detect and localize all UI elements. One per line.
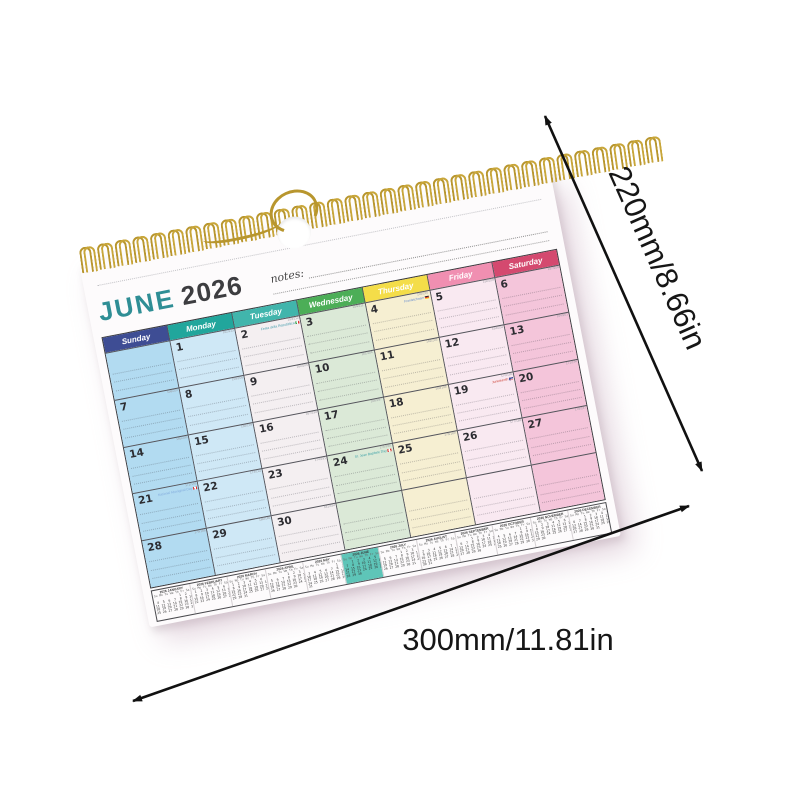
spiral-coil-icon xyxy=(503,164,519,191)
calendar-sheet: JUNE2026 notes: SundayMondayTuesdayWedne… xyxy=(79,173,621,628)
mini-month-inner: 2026 DECEMBERSu Mo Tu We Th Fr Sa 1 2 3 … xyxy=(570,504,610,534)
mini-month-december: 2026 DECEMBERSu Mo Tu We Th Fr Sa 1 2 3 … xyxy=(567,503,611,540)
mini-month-inner: 2026 JULYSu Mo Tu We Th Fr Sa 1 2 3 4 5 … xyxy=(380,541,420,571)
spiral-coil-icon xyxy=(167,229,183,256)
italy-flag-icon xyxy=(295,321,299,324)
mini-month-inner: 2026 AUGUSTSu Mo Tu We Th Fr Sa 1 2 3 4 … xyxy=(418,534,459,567)
spiral-coil-icon xyxy=(149,232,165,259)
canada-flag-icon xyxy=(388,449,392,452)
mini-month-november: 2026 NOVEMBERSu Mo Tu We Th Fr Sa 1 2 3 … xyxy=(530,511,574,548)
title-year: 2026 xyxy=(179,270,245,311)
spiral-coil-icon xyxy=(609,143,625,170)
title-month: JUNE xyxy=(96,283,178,327)
spiral-coil-icon xyxy=(520,160,536,187)
spiral-coil-icon xyxy=(644,136,660,163)
spiral-coil-icon xyxy=(96,243,112,270)
spiral-coil-icon xyxy=(573,150,589,177)
mini-month-inner: 2026 MAYSu Mo Tu We Th Fr Sa 1 2 3 4 5 6… xyxy=(305,556,346,589)
spiral-coil-icon xyxy=(556,153,572,180)
germany-flag-icon xyxy=(425,295,429,298)
spiral-coil-icon xyxy=(344,194,360,221)
mini-month-inner: 2026 JUNESu Mo Tu We Th Fr Sa 1 2 3 4 5 … xyxy=(342,548,382,578)
mini-month-inner: 2026 JANUARYSu Mo Tu We Th Fr Sa 1 2 3 4… xyxy=(153,585,193,615)
mini-month-october: 2026 OCTOBERSu Mo Tu We Th Fr Sa 1 2 3 4… xyxy=(492,518,536,555)
mini-month-september: 2026 SEPTEMBERSu Mo Tu We Th Fr Sa 1 2 3… xyxy=(454,525,498,562)
mini-month-inner: 2026 SEPTEMBERSu Mo Tu We Th Fr Sa 1 2 3… xyxy=(456,526,496,556)
mini-month-inner: 2026 NOVEMBERSu Mo Tu We Th Fr Sa 1 2 3 … xyxy=(532,512,572,542)
notes-label: notes: xyxy=(269,268,305,286)
canada-flag-icon xyxy=(193,487,197,490)
mini-month-inner: 2026 APRILSu Mo Tu We Th Fr Sa 1 2 3 4 5… xyxy=(267,563,307,593)
height-dimension-label: 220mm/8.66in xyxy=(602,161,714,355)
spiral-coil-icon xyxy=(467,170,483,197)
spiral-coil-icon xyxy=(379,188,395,215)
spiral-coil-icon xyxy=(414,181,430,208)
mini-month-june: 2026 JUNESu Mo Tu We Th Fr Sa 1 2 3 4 5 … xyxy=(340,547,384,584)
product-photo-scene: JUNE2026 notes: SundayMondayTuesdayWedne… xyxy=(0,0,800,800)
mini-month-march: 2026 MARCHSu Mo Tu We Th Fr Sa 1 2 3 4 5… xyxy=(227,569,271,606)
mini-month-january: 2026 JANUARYSu Mo Tu We Th Fr Sa 1 2 3 4… xyxy=(152,584,195,621)
mini-month-may: 2026 MAYSu Mo Tu We Th Fr Sa 1 2 3 4 5 6… xyxy=(302,555,346,592)
mini-month-april: 2026 APRILSu Mo Tu We Th Fr Sa 1 2 3 4 5… xyxy=(264,562,308,599)
spiral-coil-icon xyxy=(432,177,448,204)
spiral-coil-icon xyxy=(450,174,466,201)
spiral-coil-icon xyxy=(114,239,130,266)
spiral-coil-icon xyxy=(591,146,607,173)
spiral-coil-icon xyxy=(361,191,377,218)
mini-month-february: 2026 FEBRUARYSu Mo Tu We Th Fr Sa 1 2 3 … xyxy=(189,577,233,614)
spiral-coil-icon xyxy=(326,198,342,225)
spiral-coil-icon xyxy=(79,246,95,273)
mini-month-august: 2026 AUGUSTSu Mo Tu We Th Fr Sa 1 2 3 4 … xyxy=(416,533,460,570)
mini-month-inner: 2026 FEBRUARYSu Mo Tu We Th Fr Sa 1 2 3 … xyxy=(191,578,231,605)
spiral-coil-icon xyxy=(132,236,148,263)
mini-month-july: 2026 JULYSu Mo Tu We Th Fr Sa 1 2 3 4 5 … xyxy=(378,540,422,577)
spiral-coil-icon xyxy=(626,140,642,167)
mini-month-inner: 2026 MARCHSu Mo Tu We Th Fr Sa 1 2 3 4 5… xyxy=(229,570,269,600)
spiral-coil-icon xyxy=(397,184,413,211)
spiral-coil-icon xyxy=(538,157,554,184)
wall-calendar: JUNE2026 notes: SundayMondayTuesdayWedne… xyxy=(79,173,621,628)
mini-month-inner: 2026 OCTOBERSu Mo Tu We Th Fr Sa 1 2 3 4… xyxy=(494,519,534,549)
spiral-coil-icon xyxy=(485,167,501,194)
width-dimension-label: 300mm/11.81in xyxy=(402,622,613,657)
usa-flag-icon xyxy=(508,377,512,380)
spiral-coil-icon xyxy=(185,225,201,252)
